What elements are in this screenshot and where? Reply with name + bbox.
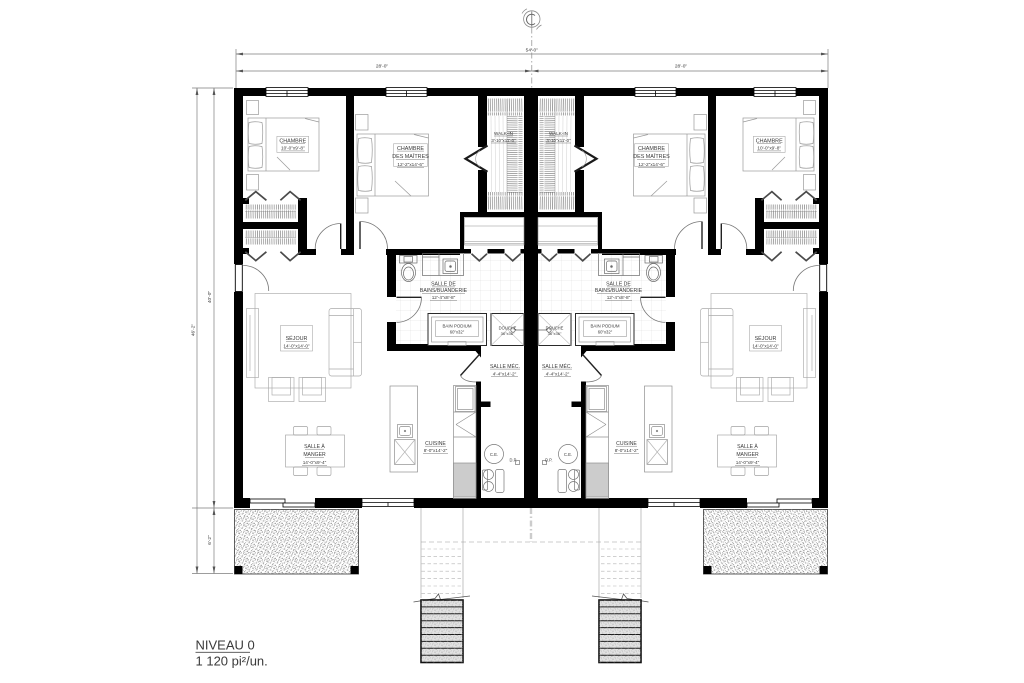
svg-text:SALLE À: SALLE À — [737, 443, 758, 450]
svg-text:C.E.: C.E. — [564, 452, 572, 457]
svg-text:40'-0": 40'-0" — [207, 291, 213, 304]
svg-text:8'-0"x14'-2": 8'-0"x14'-2" — [424, 448, 448, 453]
svg-text:DES MAÎTRES: DES MAÎTRES — [633, 153, 670, 160]
svg-text:SÉJOUR: SÉJOUR — [286, 335, 308, 342]
svg-text:6'-2": 6'-2" — [207, 535, 213, 545]
svg-text:BAIN PODIUM: BAIN PODIUM — [442, 324, 471, 329]
svg-text:3'-10"x11'-0": 3'-10"x11'-0" — [491, 138, 516, 143]
svg-text:14'-0"x9'-4": 14'-0"x9'-4" — [303, 460, 327, 465]
svg-text:4'-4"x14'-2": 4'-4"x14'-2" — [493, 371, 517, 376]
svg-text:WALK-IN: WALK-IN — [549, 131, 568, 136]
svg-text:3'-10"x11'-0": 3'-10"x11'-0" — [546, 138, 571, 143]
svg-text:36"x36": 36"x36" — [501, 331, 515, 336]
svg-text:DOUCHE: DOUCHE — [499, 325, 517, 330]
svg-text:54'-0": 54'-0" — [526, 48, 539, 54]
svg-text:10'-0"x9'-8": 10'-0"x9'-8" — [757, 146, 781, 151]
svg-text:12'-2"x14'-6": 12'-2"x14'-6" — [397, 162, 424, 167]
svg-text:SÉJOUR: SÉJOUR — [755, 335, 777, 342]
svg-text:D.P.: D.P. — [545, 458, 552, 463]
svg-text:60"x32": 60"x32" — [450, 330, 465, 335]
svg-text:12'-2"x14'-6": 12'-2"x14'-6" — [638, 162, 665, 167]
svg-text:14'-0"x9'-4": 14'-0"x9'-4" — [736, 460, 760, 465]
svg-text:36"x36": 36"x36" — [548, 331, 562, 336]
svg-text:14'-0"x14'-0": 14'-0"x14'-0" — [283, 343, 310, 348]
svg-text:SALLE MÉC.: SALLE MÉC. — [490, 363, 520, 370]
svg-text:8'-0"x14'-2": 8'-0"x14'-2" — [615, 448, 639, 453]
svg-text:10'-0"x9'-8": 10'-0"x9'-8" — [281, 146, 305, 151]
svg-text:1 120 pi²/un.: 1 120 pi²/un. — [196, 654, 268, 669]
svg-text:SALLE À: SALLE À — [304, 443, 325, 450]
svg-text:12'-4"x8'-8": 12'-4"x8'-8" — [432, 295, 456, 300]
svg-text:12'-4"x8'-8": 12'-4"x8'-8" — [607, 295, 631, 300]
svg-text:WALK-IN: WALK-IN — [494, 131, 513, 136]
svg-text:C.E.: C.E. — [490, 452, 498, 457]
svg-text:14'-0"x14'-0": 14'-0"x14'-0" — [752, 343, 779, 348]
svg-text:46'-2": 46'-2" — [191, 324, 197, 337]
svg-text:DOUCHE: DOUCHE — [546, 325, 564, 330]
svg-text:BAIN PODIUM: BAIN PODIUM — [590, 324, 619, 329]
svg-text:SALLE MÉC.: SALLE MÉC. — [542, 363, 572, 370]
svg-text:DES MAÎTRES: DES MAÎTRES — [392, 153, 429, 160]
svg-text:4'-4"x14'-2": 4'-4"x14'-2" — [546, 371, 570, 376]
svg-text:D.P.: D.P. — [510, 458, 517, 463]
svg-text:28'-0": 28'-0" — [675, 64, 688, 70]
svg-text:NIVEAU 0: NIVEAU 0 — [196, 638, 255, 653]
svg-text:28'-0": 28'-0" — [376, 64, 389, 70]
svg-text:60"x32": 60"x32" — [598, 330, 613, 335]
